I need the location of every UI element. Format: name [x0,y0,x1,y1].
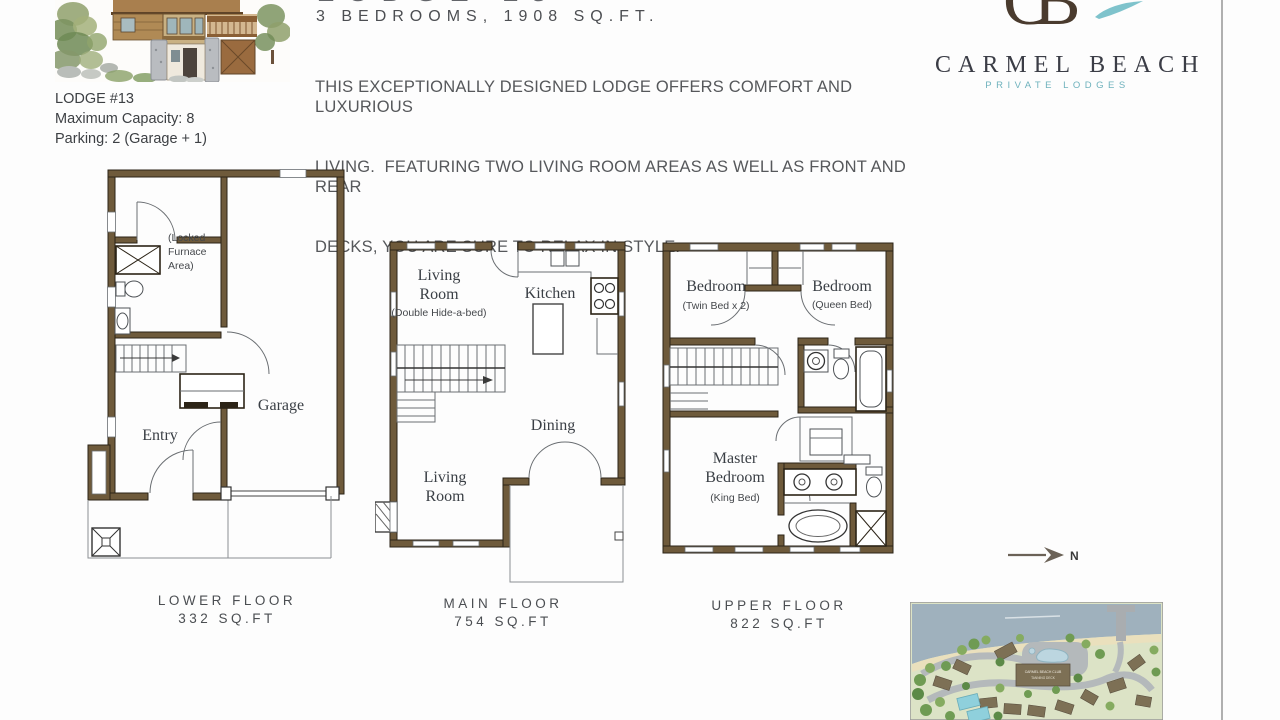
upper-floor-area: 822 SQ.FT [674,615,884,633]
dining-label: Dining [531,417,575,434]
description-line: LIVING. FEATURING TWO LIVING ROOM AREAS … [315,157,940,197]
furnace-label: Area) [168,260,194,272]
lower-floor-area: 332 SQ.FT [122,610,332,628]
lower-porch [88,500,228,558]
lodge-name: LODGE #13 [55,89,207,109]
lower-sink [115,308,130,334]
living-room-label: Room [419,286,459,303]
upper-linen-closet [800,417,852,461]
resort-site-map: CARMEL BEACH CLUB TANNING DECK [910,602,1163,720]
entry-label: Entry [142,427,178,444]
bedroom2-label: Bedroom [812,278,872,295]
upper-floor-name: UPPER FLOOR [674,597,884,615]
main-floor-caption: MAIN FLOOR 754 SQ.FT [398,595,608,631]
main-stairs [397,345,505,422]
page-subtitle: 3 BEDROOMS, 1908 SQ.FT. [316,8,659,26]
lower-floor-caption: LOWER FLOOR 332 SQ.FT [122,592,332,628]
bedroom1-note: (Twin Bed x 2) [682,300,749,312]
master-bedroom-label: Bedroom [705,469,765,486]
brand-monogram-icon: CB [997,0,1107,35]
upper-floor-plan: Bedroom (Twin Bed x 2) Bedroom (Queen Be… [650,235,905,565]
living-room2-label: Living [424,469,467,486]
upper-stairs [670,348,778,409]
club-label: CARMEL BEACH CLUB [1025,670,1062,674]
garage-label: Garage [258,397,304,414]
furnace-label: (Locked [168,232,206,244]
main-floor-name: MAIN FLOOR [398,595,608,613]
lower-toilet [116,281,143,297]
lower-stairs [116,345,244,408]
tanning-deck-label: TANNING DECK [1031,676,1056,680]
brand-name: CARMEL BEACH [935,52,1180,79]
lower-walls [108,170,344,500]
site-map-club-building: CARMEL BEACH CLUB TANNING DECK [1016,664,1070,686]
bedroom2-note: (Queen Bed) [812,299,872,311]
lower-deck-left [88,445,110,500]
bedroom1-label: Bedroom [686,278,746,295]
hide-a-bed-note: (Double Hide-a-bed) [391,307,486,319]
main-room-labels: Living Room (Double Hide-a-bed) Kitchen … [391,267,575,505]
lower-garage-door-driveway [221,487,339,558]
brochure-page: LODGE #13 Maximum Capacity: 8 Parking: 2… [0,0,1280,720]
furnace-label: Furnace [168,246,207,258]
main-deck [510,485,623,582]
master-bedroom-note: (King Bed) [710,492,760,504]
lodge-illustration [55,0,290,82]
main-fireplace [375,502,397,532]
main-floor-area: 754 SQ.FT [398,613,608,631]
main-kitchen [518,251,618,354]
brand-tagline: PRIVATE LODGES [935,80,1180,91]
lower-shower [116,246,160,274]
living-room-label: Living [418,267,461,284]
lodge-parking: Parking: 2 (Garage + 1) [55,129,207,149]
description-line: THIS EXCEPTIONALLY DESIGNED LODGE OFFERS… [315,77,940,117]
lodge-info-block: LODGE #13 Maximum Capacity: 8 Parking: 2… [55,89,207,149]
living-room2-label: Room [425,488,465,505]
north-arrow-icon: N [1000,542,1090,568]
upper-master-bath [784,455,886,546]
lodge-capacity: Maximum Capacity: 8 [55,109,207,129]
upper-floor-caption: UPPER FLOOR 822 SQ.FT [674,597,884,633]
lower-floor-name: LOWER FLOOR [122,592,332,610]
master-bedroom-label: Master [713,450,758,467]
brand-logo: CB CARMEL BEACH PRIVATE LODGES [935,0,1180,100]
lower-floor-plan: (Locked Furnace Area) Entry Garage [80,162,360,567]
main-floor-plan: Living Room (Double Hide-a-bed) Kitchen … [375,232,640,587]
scan-edge-line [1221,0,1223,720]
upper-shared-bath [804,347,886,411]
north-label: N [1070,549,1079,563]
kitchen-label: Kitchen [525,285,576,302]
brand-swoosh-icon [1093,0,1145,20]
